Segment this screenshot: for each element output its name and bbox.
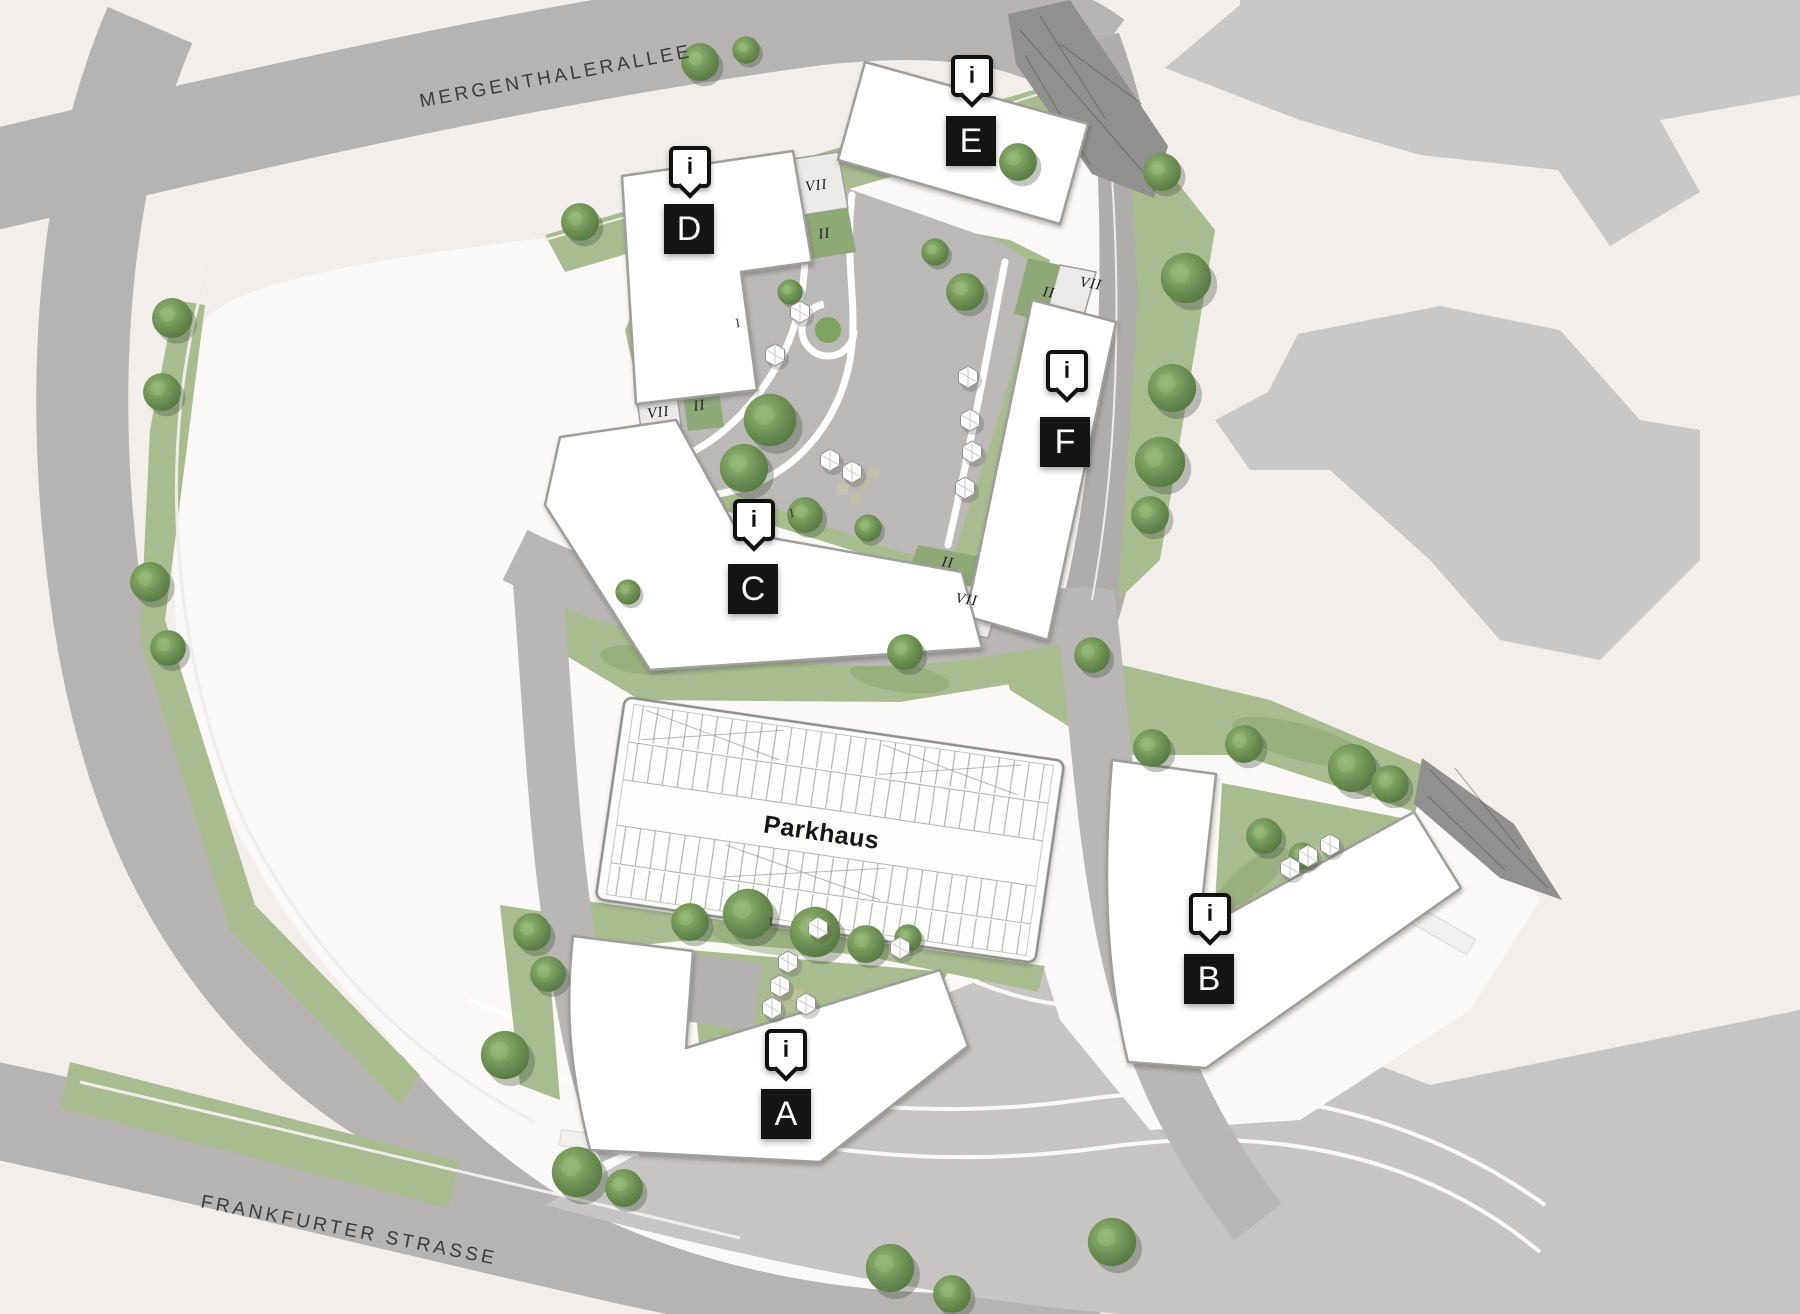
building-label-e[interactable]: E bbox=[946, 116, 996, 166]
level-label-de-green: II bbox=[816, 225, 831, 243]
info-marker-e[interactable]: i bbox=[951, 55, 993, 97]
plaza-bench-shrub bbox=[815, 317, 841, 343]
level-label-ef-green: II bbox=[1040, 284, 1056, 302]
level-label-dc-band: VII bbox=[646, 404, 670, 423]
neighbor-buildings bbox=[1165, 0, 1800, 660]
building-label-f[interactable]: F bbox=[1040, 417, 1090, 467]
info-marker-a[interactable]: i bbox=[765, 1029, 807, 1071]
site-plan-map: Parkhaus bbox=[0, 0, 1800, 1314]
level-label-cf-green: II bbox=[939, 554, 954, 572]
level-label-cf-band: VII bbox=[954, 590, 978, 609]
building-label-d[interactable]: D bbox=[664, 204, 714, 254]
building-label-b[interactable]: B bbox=[1184, 954, 1234, 1004]
a-courtyard-patio bbox=[682, 953, 763, 1030]
site-plan: Parkhaus bbox=[0, 0, 1800, 1314]
level-label-dc-green: II bbox=[691, 397, 706, 415]
building-label-c[interactable]: C bbox=[728, 564, 778, 614]
building-label-a[interactable]: A bbox=[761, 1089, 811, 1139]
info-marker-f[interactable]: i bbox=[1046, 350, 1088, 392]
info-marker-d[interactable]: i bbox=[669, 146, 711, 188]
neighbor-building-east bbox=[1215, 306, 1700, 660]
info-marker-b[interactable]: i bbox=[1189, 893, 1231, 935]
level-label-de-band: VII bbox=[804, 177, 828, 196]
neighbor-building-north bbox=[1165, 0, 1800, 246]
info-marker-c[interactable]: i bbox=[733, 499, 775, 541]
